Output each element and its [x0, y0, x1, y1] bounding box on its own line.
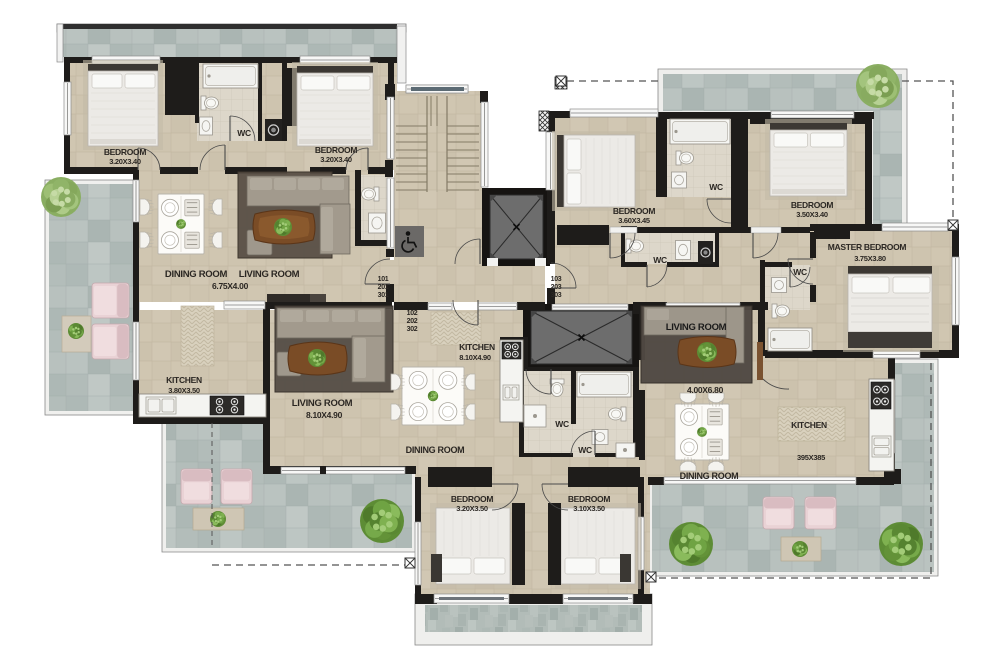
svg-text:8.10X4.90: 8.10X4.90	[306, 410, 343, 420]
svg-text:WC: WC	[653, 255, 667, 265]
svg-text:3.80X3.50: 3.80X3.50	[168, 386, 200, 395]
svg-text:MASTER BEDROOM: MASTER BEDROOM	[828, 242, 907, 252]
svg-text:101: 101	[378, 276, 389, 283]
svg-text:201: 201	[378, 284, 389, 291]
svg-text:3.60X3.45: 3.60X3.45	[618, 216, 650, 225]
svg-text:DINING ROOM: DINING ROOM	[680, 471, 739, 481]
svg-text:3.20X3.40: 3.20X3.40	[109, 157, 141, 166]
svg-text:203: 203	[551, 284, 562, 291]
svg-text:KITCHEN: KITCHEN	[459, 342, 495, 352]
svg-text:LIVING ROOM: LIVING ROOM	[239, 269, 300, 280]
svg-text:302: 302	[407, 326, 418, 333]
svg-text:KITCHEN: KITCHEN	[166, 375, 202, 385]
svg-text:4.00X6.80: 4.00X6.80	[687, 385, 724, 395]
svg-text:6.75X4.00: 6.75X4.00	[212, 281, 249, 291]
svg-text:BEDROOM: BEDROOM	[613, 206, 656, 216]
svg-text:LIVING ROOM: LIVING ROOM	[666, 322, 727, 333]
svg-text:303: 303	[551, 292, 562, 299]
svg-text:3.75X3.80: 3.75X3.80	[854, 254, 886, 263]
svg-text:3.50X3.40: 3.50X3.40	[796, 210, 828, 219]
svg-text:WC: WC	[555, 419, 569, 429]
svg-text:BEDROOM: BEDROOM	[104, 147, 147, 157]
svg-text:103: 103	[551, 276, 562, 283]
svg-text:3.10X3.50: 3.10X3.50	[573, 504, 605, 513]
svg-text:8.10X4.90: 8.10X4.90	[459, 353, 491, 362]
svg-text:3.20X3.50: 3.20X3.50	[456, 504, 488, 513]
svg-text:102: 102	[407, 310, 418, 317]
svg-text:BEDROOM: BEDROOM	[791, 200, 834, 210]
svg-text:BEDROOM: BEDROOM	[315, 145, 358, 155]
svg-text:301: 301	[378, 292, 389, 299]
svg-text:WC: WC	[709, 182, 723, 192]
svg-text:3.20X3.40: 3.20X3.40	[320, 155, 352, 164]
svg-text:395X385: 395X385	[797, 453, 825, 462]
svg-text:BEDROOM: BEDROOM	[568, 494, 611, 504]
svg-text:WC: WC	[237, 128, 251, 138]
svg-text:202: 202	[407, 318, 418, 325]
svg-text:KITCHEN: KITCHEN	[791, 420, 827, 430]
svg-text:DINING ROOM: DINING ROOM	[165, 269, 228, 280]
svg-text:BEDROOM: BEDROOM	[451, 494, 494, 504]
svg-text:WC: WC	[793, 267, 807, 277]
svg-text:WC: WC	[578, 445, 592, 455]
svg-text:LIVING ROOM: LIVING ROOM	[292, 398, 353, 409]
svg-text:DINING ROOM: DINING ROOM	[406, 445, 465, 455]
